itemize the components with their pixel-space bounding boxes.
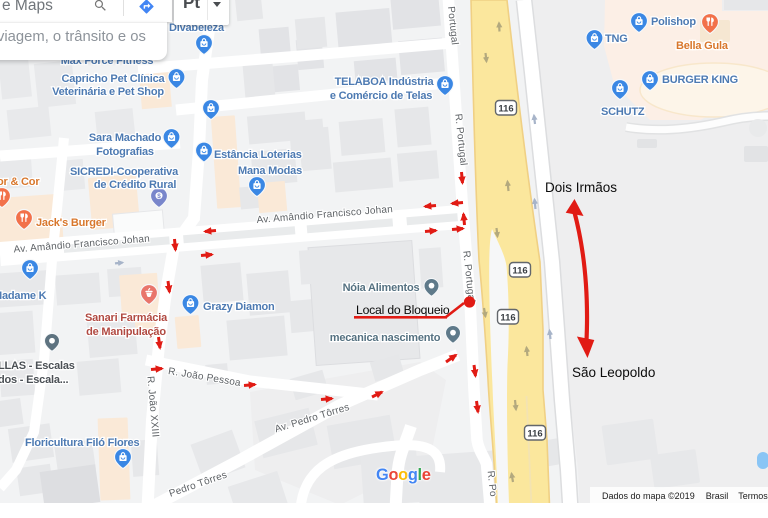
svg-text:SCHUTZ: SCHUTZ — [601, 106, 645, 118]
svg-text:São Leopoldo: São Leopoldo — [572, 365, 655, 380]
svg-text:de Crédito Rural: de Crédito Rural — [94, 179, 177, 191]
svg-text:e Comércio de Telas: e Comércio de Telas — [330, 90, 432, 102]
svg-text:Veterinária e Pet Shop: Veterinária e Pet Shop — [52, 86, 164, 98]
svg-text:Floricultura Filó Flores: Floricultura Filó Flores — [25, 437, 139, 449]
svg-text:or & Cor: or & Cor — [0, 176, 40, 188]
svg-text:Fotografias: Fotografias — [96, 146, 154, 158]
svg-text:BURGER KING: BURGER KING — [662, 74, 738, 86]
svg-text:Estância Loterias: Estância Loterias — [214, 149, 302, 161]
svg-text:Madame K: Madame K — [0, 290, 47, 302]
svg-text:Sanari Farmácia: Sanari Farmácia — [85, 312, 168, 324]
svg-text:Local do Bloqueio: Local do Bloqueio — [356, 303, 450, 317]
svg-text:mecanica nascimento: mecanica nascimento — [330, 332, 441, 344]
svg-text:TNG: TNG — [605, 33, 628, 45]
svg-text:116: 116 — [498, 104, 513, 115]
svg-text:LLAS - Escalas: LLAS - Escalas — [0, 360, 75, 372]
svg-text:dos - Escala...: dos - Escala... — [0, 374, 69, 386]
svg-text:Bella Gula: Bella Gula — [676, 40, 729, 52]
svg-text:116: 116 — [500, 313, 515, 324]
svg-text:Sara Machado: Sara Machado — [89, 132, 162, 144]
svg-text:Capricho Pet Clínica: Capricho Pet Clínica — [62, 73, 166, 85]
svg-text:Mana Modas: Mana Modas — [238, 165, 302, 177]
svg-text:116: 116 — [527, 429, 542, 440]
svg-text:Dois Irmãos: Dois Irmãos — [545, 180, 617, 195]
svg-text:Nóia Alimentos: Nóia Alimentos — [343, 282, 420, 294]
svg-text:TELABOA Indústria: TELABOA Indústria — [335, 76, 435, 88]
svg-text:SICREDI-Cooperativa: SICREDI-Cooperativa — [70, 166, 179, 178]
svg-text:Jack's Burger: Jack's Burger — [36, 217, 107, 229]
svg-text:Grazy Diamon: Grazy Diamon — [203, 301, 275, 313]
svg-text:116: 116 — [512, 266, 527, 277]
svg-text:Polishop: Polishop — [651, 16, 696, 28]
svg-text:de Manipulação: de Manipulação — [86, 326, 166, 338]
